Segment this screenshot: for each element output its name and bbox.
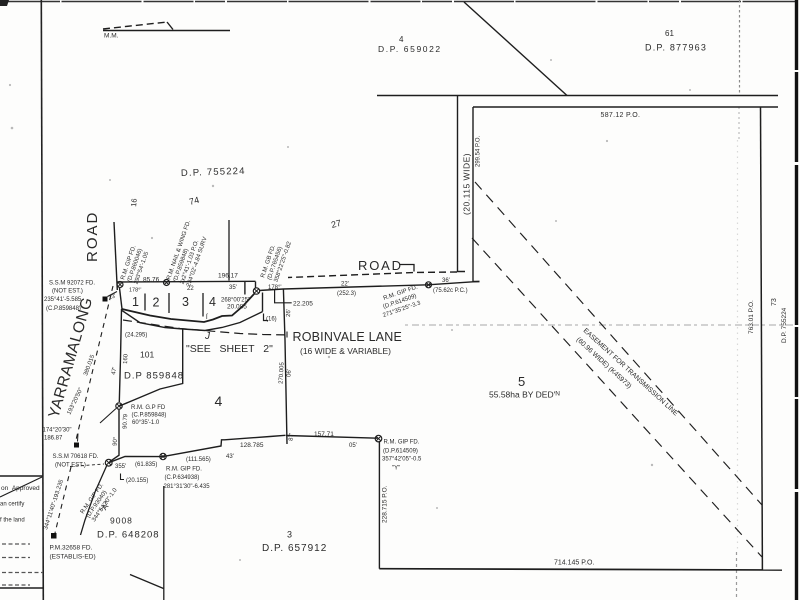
svg-text:ROBINVALE LANE: ROBINVALE LANE: [293, 330, 403, 344]
svg-text:90.79: 90.79: [123, 413, 130, 429]
svg-text:"SEE SHEET 2": "SEE SHEET 2": [186, 343, 273, 355]
svg-text:R.M. G.P FD: R.M. G.P FD: [131, 405, 166, 411]
svg-text:06': 06': [287, 369, 293, 377]
svg-text:85.76: 85.76: [143, 277, 160, 284]
svg-text:235°41'-5.585: 235°41'-5.585: [44, 297, 82, 303]
svg-text:9008: 9008: [110, 516, 133, 526]
svg-text:(D.P.614509): (D.P.614509): [383, 449, 418, 455]
svg-text:P.M.32658 FD.: P.M.32658 FD.: [50, 545, 93, 552]
svg-text:763.01 P.O.: 763.01 P.O.: [748, 300, 755, 334]
svg-text:D.P 859848: D.P 859848: [124, 371, 184, 382]
svg-text:R.M. GIP FD.: R.M. GIP FD.: [384, 440, 420, 446]
svg-text:(C.P.859848): (C.P.859848): [132, 413, 167, 419]
svg-text:D.P. 755224: D.P. 755224: [781, 307, 788, 343]
svg-text:160: 160: [123, 353, 130, 364]
svg-text:22: 22: [187, 286, 194, 292]
svg-text:36': 36': [442, 278, 450, 284]
svg-text:73: 73: [771, 298, 778, 306]
svg-text:101: 101: [140, 350, 154, 360]
svg-text:60°35'-1.0: 60°35'-1.0: [132, 420, 160, 426]
svg-text:355': 355': [115, 464, 126, 470]
svg-text:128.785: 128.785: [240, 442, 264, 449]
svg-text:43': 43': [226, 454, 234, 460]
svg-text:299.54 P.O.: 299.54 P.O.: [476, 135, 482, 167]
svg-text:(C.P.634938): (C.P.634938): [165, 475, 200, 481]
svg-text:M.M.: M.M.: [104, 33, 119, 40]
svg-text:5: 5: [518, 374, 525, 389]
svg-text:228.715 P.O.: 228.715 P.O.: [382, 485, 389, 523]
svg-text:ROAD: ROAD: [84, 211, 101, 262]
svg-text:22': 22': [341, 282, 349, 288]
svg-text:D.P. 648208: D.P. 648208: [97, 530, 160, 541]
svg-text:26': 26': [286, 309, 292, 317]
svg-text:3: 3: [287, 530, 292, 540]
svg-text:270.005: 270.005: [279, 361, 286, 384]
svg-text:(111.565): (111.565): [186, 457, 211, 463]
svg-text:178°': 178°': [129, 288, 141, 294]
svg-text:J: J: [204, 331, 211, 342]
svg-text:(16 WIDE & VARIABLE): (16 WIDE & VARIABLE): [300, 346, 391, 356]
svg-text:(16): (16): [266, 317, 277, 323]
svg-text:196.17: 196.17: [218, 273, 238, 280]
svg-text:(24.295): (24.295): [125, 333, 147, 339]
svg-text:on Approved: on Approved: [1, 485, 40, 492]
svg-text:D.P. 755224: D.P. 755224: [181, 166, 246, 179]
svg-text:(C.P.859848): (C.P.859848): [46, 306, 81, 312]
svg-text:186.87: 186.87: [44, 436, 63, 442]
svg-text:281°31'30"-6.435: 281°31'30"-6.435: [164, 484, 211, 490]
svg-text:(61.835): (61.835): [135, 462, 157, 468]
svg-text:D.P. 877963: D.P. 877963: [645, 43, 707, 53]
svg-text:174°20'30": 174°20'30": [43, 428, 72, 434]
svg-text:714.145 P.O.: 714.145 P.O.: [554, 560, 594, 567]
svg-text:(20.155): (20.155): [126, 478, 148, 484]
svg-text:D.P. 659022: D.P. 659022: [378, 44, 442, 54]
svg-text:f the land: f the land: [0, 518, 25, 524]
svg-text:22.205: 22.205: [293, 301, 313, 308]
svg-text:87': 87': [289, 433, 296, 441]
svg-text:R.M. GIP FD.: R.M. GIP FD.: [166, 467, 202, 473]
svg-text:3: 3: [182, 295, 189, 309]
svg-text:"Y": "Y": [392, 466, 400, 472]
svg-text:05': 05': [349, 443, 357, 449]
svg-text:(252.3): (252.3): [337, 291, 356, 297]
svg-text:16: 16: [129, 198, 139, 207]
svg-text:4: 4: [209, 295, 216, 309]
svg-text:157.71: 157.71: [314, 431, 334, 438]
svg-text:(NOT EST.): (NOT EST.): [52, 289, 83, 295]
svg-text:S.S.M 70618 FD.: S.S.M 70618 FD.: [53, 454, 99, 460]
svg-text:55.58ha BY DED'N: 55.58ha BY DED'N: [489, 390, 560, 400]
svg-text:(20.115 WIDE): (20.115 WIDE): [462, 153, 472, 215]
svg-text:90°: 90°: [113, 436, 120, 446]
svg-text:(ESTABLIS-ED): (ESTABLIS-ED): [50, 554, 96, 561]
svg-text:357°42'05"-0.5: 357°42'05"-0.5: [382, 457, 422, 463]
svg-text:S.S.M 92072 FD.: S.S.M 92072 FD.: [49, 281, 95, 287]
svg-text:ROAD: ROAD: [358, 258, 403, 273]
svg-text:61: 61: [665, 29, 674, 38]
svg-text:D.P. 657912: D.P. 657912: [262, 543, 327, 554]
svg-text:587.12 P.O.: 587.12 P.O.: [601, 112, 641, 119]
svg-text:an certify: an certify: [0, 502, 24, 508]
svg-text:4: 4: [399, 35, 404, 44]
svg-text:1: 1: [132, 295, 139, 309]
svg-text:(75.62c P.C.): (75.62c P.C.): [433, 288, 468, 294]
svg-text:4: 4: [215, 393, 223, 409]
svg-text:2: 2: [153, 296, 160, 310]
svg-text:35': 35': [229, 285, 237, 291]
